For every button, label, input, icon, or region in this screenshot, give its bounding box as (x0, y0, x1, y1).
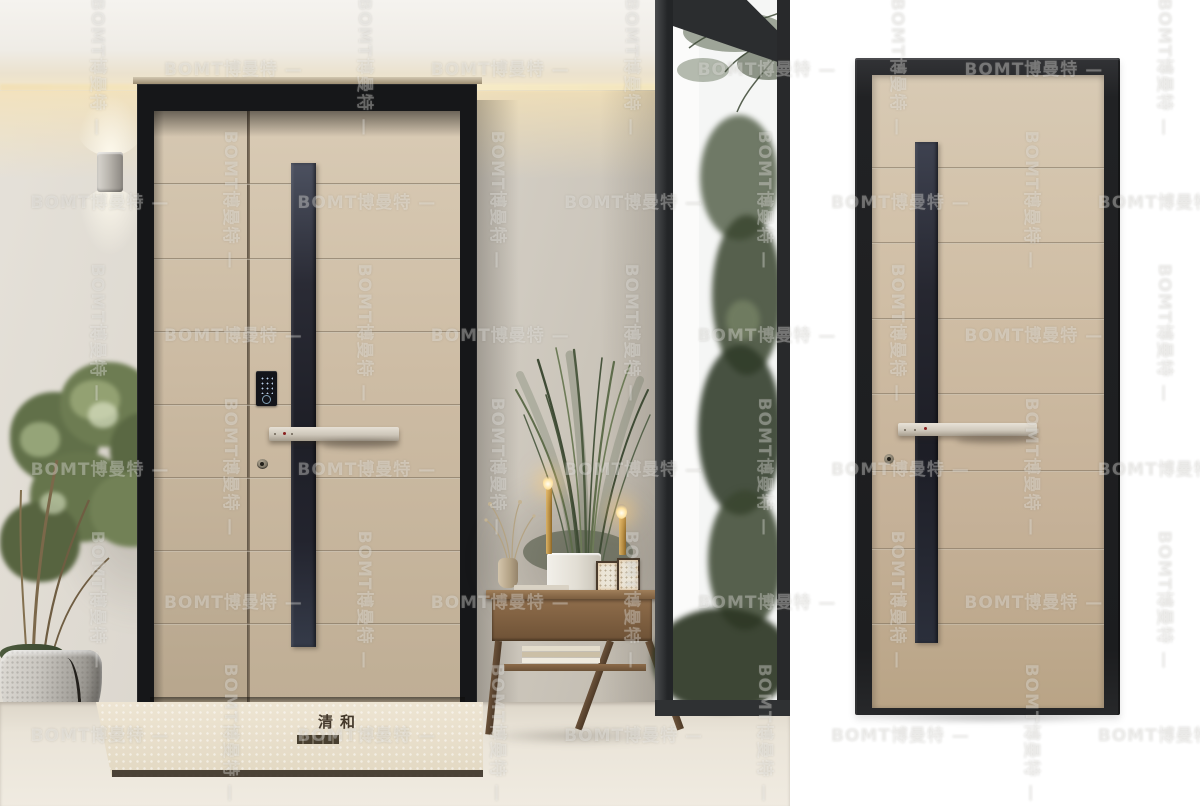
console-table-drawer (492, 599, 652, 641)
door-pull-stripe (915, 142, 938, 643)
lantern-candle-box (617, 558, 640, 592)
door-groove (872, 548, 1104, 550)
book (522, 646, 600, 651)
ceramic-vase (498, 558, 518, 588)
door-leaf-main (250, 111, 460, 702)
door-groove (872, 242, 1104, 244)
handle-screw (904, 429, 906, 431)
door-pull-stripe (291, 163, 316, 647)
entry-scene-photo: 清和 (0, 0, 790, 806)
product-drop-shadow (868, 713, 1108, 723)
entry-door (154, 111, 460, 702)
product-door-panel (872, 75, 1104, 708)
smart-lock-keypad (256, 371, 277, 406)
door-product-showcase: 清和 (0, 0, 1200, 806)
watermark-text: BOMT博曼特 — (1155, 248, 1179, 418)
foliage-highlight (88, 402, 118, 428)
door-header-trim (133, 77, 482, 84)
handle-screw (291, 433, 293, 435)
candlestick (546, 488, 552, 554)
watermark-text: BOMT博曼特 — (815, 721, 985, 745)
sconce-up-glow (76, 94, 144, 156)
door-groove (872, 623, 1104, 625)
book-stack (522, 646, 600, 664)
table-lower-shelf (504, 664, 646, 671)
handle-red-dot (924, 427, 927, 430)
candlestick (619, 517, 626, 555)
candle-flame (616, 504, 627, 519)
handle-red-dot (283, 432, 286, 435)
door-leaf-narrow (154, 111, 247, 702)
doormat-brand-text: 清和 (282, 711, 398, 732)
outdoor-tree-highlight (726, 300, 760, 340)
doormat-label-badge (297, 735, 339, 744)
door-jamb-shadow (154, 111, 164, 702)
watermark-text: BOMT博曼特 — (1082, 721, 1200, 745)
wall-sconce-light (97, 152, 123, 192)
door-groove (872, 167, 1104, 169)
watermark-text: BOMT博曼特 — (1155, 0, 1179, 152)
window-mullion-right (777, 0, 790, 714)
door-keyhole (884, 454, 894, 464)
candle-flame (543, 475, 553, 490)
watermark-text: BOMT博曼特 — (1155, 515, 1179, 685)
door-recess-shadow (154, 111, 460, 137)
door-handle-bar (269, 427, 399, 441)
door-keyhole (257, 459, 268, 469)
console-table-top (486, 590, 658, 599)
door-handle-bar (898, 423, 1037, 436)
handle-screw (914, 429, 916, 431)
door-groove (872, 393, 1104, 395)
window-base-frame (655, 700, 790, 716)
door-groove (872, 470, 1104, 472)
tree-trunk-branches (5, 430, 125, 665)
dried-sprigs (482, 498, 538, 562)
handle-screw (274, 433, 276, 435)
table-floor-shadow (478, 728, 673, 744)
doormat-trim (112, 770, 483, 777)
book (522, 658, 600, 663)
book (522, 652, 600, 657)
sconce-down-glow (78, 188, 142, 254)
door-groove (872, 318, 1104, 320)
window-mullion-left (655, 0, 673, 714)
